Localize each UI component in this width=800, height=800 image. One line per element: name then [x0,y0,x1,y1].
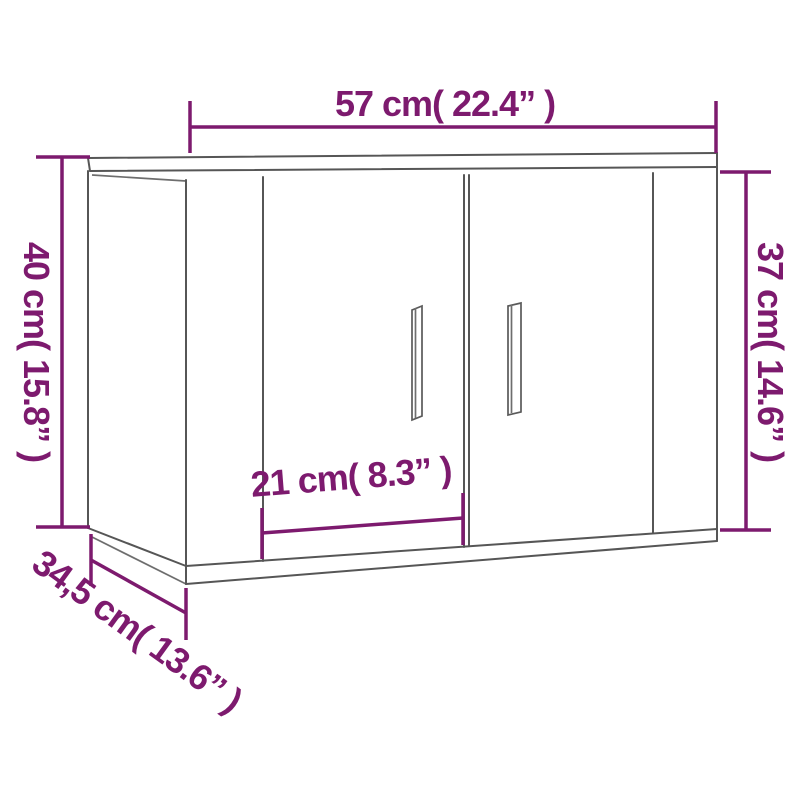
cabinet-side-panel [88,171,186,584]
dim-label-height-left: 40 cm( 15.8” ) [16,242,57,462]
dim-label-depth-bottom: 34,5 cm( 13.6” ) [25,541,250,720]
cabinet-diagram-svg: 57 cm( 22.4” ) 40 cm( 15.8” ) 37 cm( 14.… [0,0,800,800]
dimension-diagram: 57 cm( 22.4” ) 40 cm( 15.8” ) 37 cm( 14.… [0,0,800,800]
right-door-handle [508,303,521,415]
cabinet-top-panel [88,153,717,171]
left-door-handle [412,306,422,420]
left-door [263,175,464,561]
cabinet-drawing [88,153,717,584]
dimension-door-width: 21 cm( 8.3” ) [249,448,463,559]
dimension-height-left: 40 cm( 15.8” ) [16,157,90,527]
dimension-depth-bottom: 34,5 cm( 13.6” ) [25,534,250,720]
dimension-height-right: 37 cm( 14.6” ) [720,172,791,530]
dim-label-width-top: 57 cm( 22.4” ) [335,83,555,124]
cabinet-front-frame [186,167,717,584]
dimension-width-top: 57 cm( 22.4” ) [190,83,716,153]
dim-label-door-width: 21 cm( 8.3” ) [249,448,453,505]
dim-label-height-right: 37 cm( 14.6” ) [750,242,791,462]
